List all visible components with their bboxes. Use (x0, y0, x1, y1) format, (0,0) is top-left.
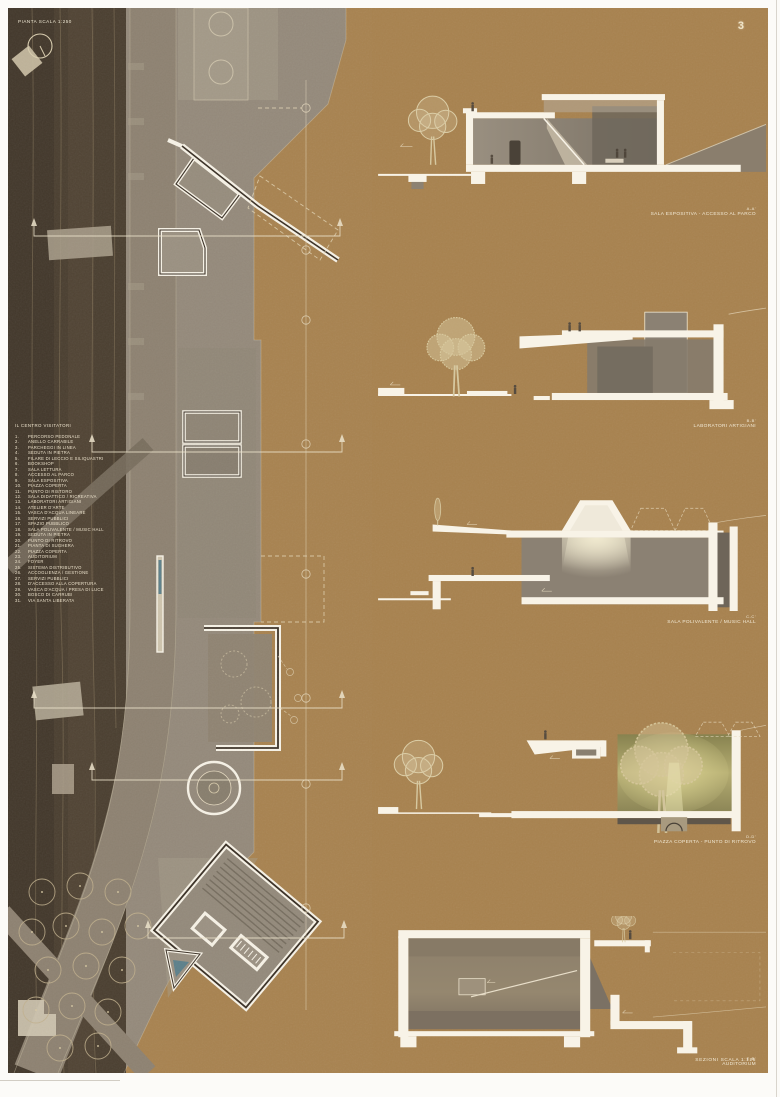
section-drawing-cc: C-C' SALA POLIVALENTE / MUSIC HALL (370, 478, 766, 626)
section-drawing-bb: B-B' LABORATORI ARTIGIANI (370, 296, 766, 430)
section-bb-svg (370, 296, 766, 415)
section-drawing-dd: D-D' PIAZZA COPERTA - PUNTO DI RITROVO (370, 702, 766, 846)
legend-title: IL CENTRO VISITATORI (15, 423, 153, 428)
section-title: PIAZZA COPERTA - PUNTO DI RITROVO (654, 840, 756, 847)
sheet-edge-line-bottom (0, 1080, 120, 1081)
section-title: SALA POLIVALENTE / MUSIC HALL (667, 620, 756, 627)
sheet-edge-line-right (776, 0, 777, 1097)
sections-scale-label: SEZIONI SCALA 1:125 (695, 1058, 756, 1063)
section-ee-svg (370, 916, 766, 1055)
section-drawing-ee: E-E' AUDITORIUM (370, 916, 766, 1068)
board-background: PIANTA SCALA 1:250 3 IL CENTRO VISITATOR… (8, 8, 768, 1073)
section-caption: C-C' SALA POLIVALENTE / MUSIC HALL (667, 614, 756, 627)
section-aa-svg (370, 86, 766, 203)
plan-legend: IL CENTRO VISITATORI 1.PERCORSO PEDONALE… (15, 423, 153, 603)
section-cc-svg (370, 478, 766, 611)
section-drawing-aa: A-A' SALA ESPOSITIVA - ACCESSO AL PARCO (370, 86, 766, 218)
section-caption: D-D' PIAZZA COPERTA - PUNTO DI RITROVO (654, 834, 756, 847)
section-caption: B-B' LABORATORI ARTIGIANI (694, 418, 756, 431)
presentation-board: PIANTA SCALA 1:250 3 IL CENTRO VISITATOR… (0, 0, 780, 1097)
legend-list: 1.PERCORSO PEDONALE 2.ANELLO CARRABILE 3… (15, 434, 153, 603)
page-number: 3 (738, 20, 744, 32)
section-title: SALA ESPOSITIVA - ACCESSO AL PARCO (651, 212, 756, 219)
section-caption: A-A' SALA ESPOSITIVA - ACCESSO AL PARCO (651, 206, 756, 219)
legend-item: 31.VIA SANTA LIBERATA (15, 598, 153, 603)
section-title: LABORATORI ARTIGIANI (694, 424, 756, 431)
plan-scale-label: PIANTA SCALA 1:250 (18, 19, 72, 24)
section-dd-svg (370, 702, 766, 833)
